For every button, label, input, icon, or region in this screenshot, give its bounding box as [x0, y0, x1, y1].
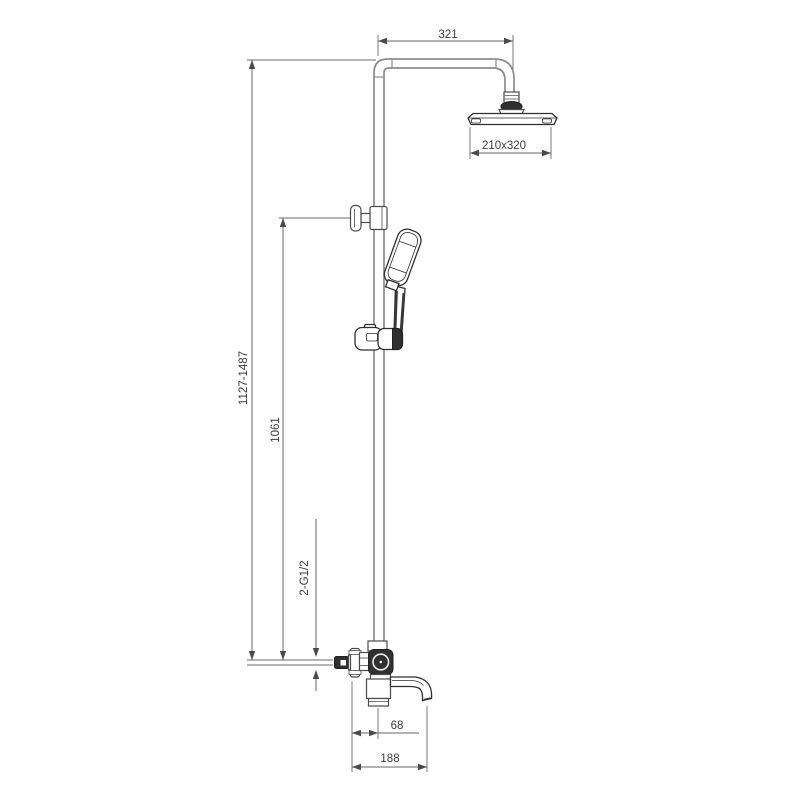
dimension-label-riser-height: 1061 [270, 417, 282, 443]
diverter-handle [351, 206, 362, 232]
arrowhead-right [542, 150, 551, 156]
mixer-valve [369, 650, 394, 675]
arrowhead-down [249, 651, 255, 660]
diverter-stem [361, 214, 370, 223]
arrowhead-left [470, 150, 479, 156]
wall-mixer-faucet [335, 641, 432, 706]
valve-center-dot [380, 661, 383, 664]
arrowhead-left [352, 764, 361, 770]
arrowhead-up [313, 670, 319, 679]
overhead-shower-head [468, 92, 557, 125]
dimension-spout-reach: 188 [352, 706, 427, 772]
mixer-handle [335, 655, 353, 670]
shower-system-dimension-drawing: 321 210x320 1127-1487 1061 2-G1/2 [0, 0, 800, 800]
arrowhead-up [249, 60, 255, 69]
technical-drawing-page: 321 210x320 1127-1487 1061 2-G1/2 [0, 0, 800, 800]
arrowhead-right [504, 38, 513, 44]
dimension-label-spout-offset: 68 [391, 720, 404, 732]
arrowhead-down [280, 651, 286, 660]
arrowhead-left [378, 38, 387, 44]
arrowhead-up [280, 218, 286, 227]
holder-clamp-grip [393, 329, 403, 350]
dimension-label-overhead-size: 210x320 [482, 140, 526, 152]
hand-shower-holder [355, 325, 403, 351]
dimension-label-spout-reach: 188 [380, 753, 399, 765]
diverter-body [370, 207, 387, 230]
hex-adapter [360, 653, 370, 671]
diverter-knob [351, 206, 388, 232]
dimension-label-overall-height: 1127-1487 [238, 351, 250, 405]
hand-shower-head [380, 226, 424, 292]
arrowhead-right [369, 730, 378, 736]
tub-spout [367, 675, 432, 707]
arrowhead-left [352, 730, 361, 736]
dimension-label-inlet-thread: 2-G1/2 [299, 560, 311, 595]
dimension-overhead-size: 210x320 [470, 127, 551, 159]
dimension-label-arm-reach: 321 [438, 29, 457, 41]
arrowhead-down [313, 648, 319, 657]
arrowhead-right [418, 764, 427, 770]
hand-shower [355, 226, 424, 350]
